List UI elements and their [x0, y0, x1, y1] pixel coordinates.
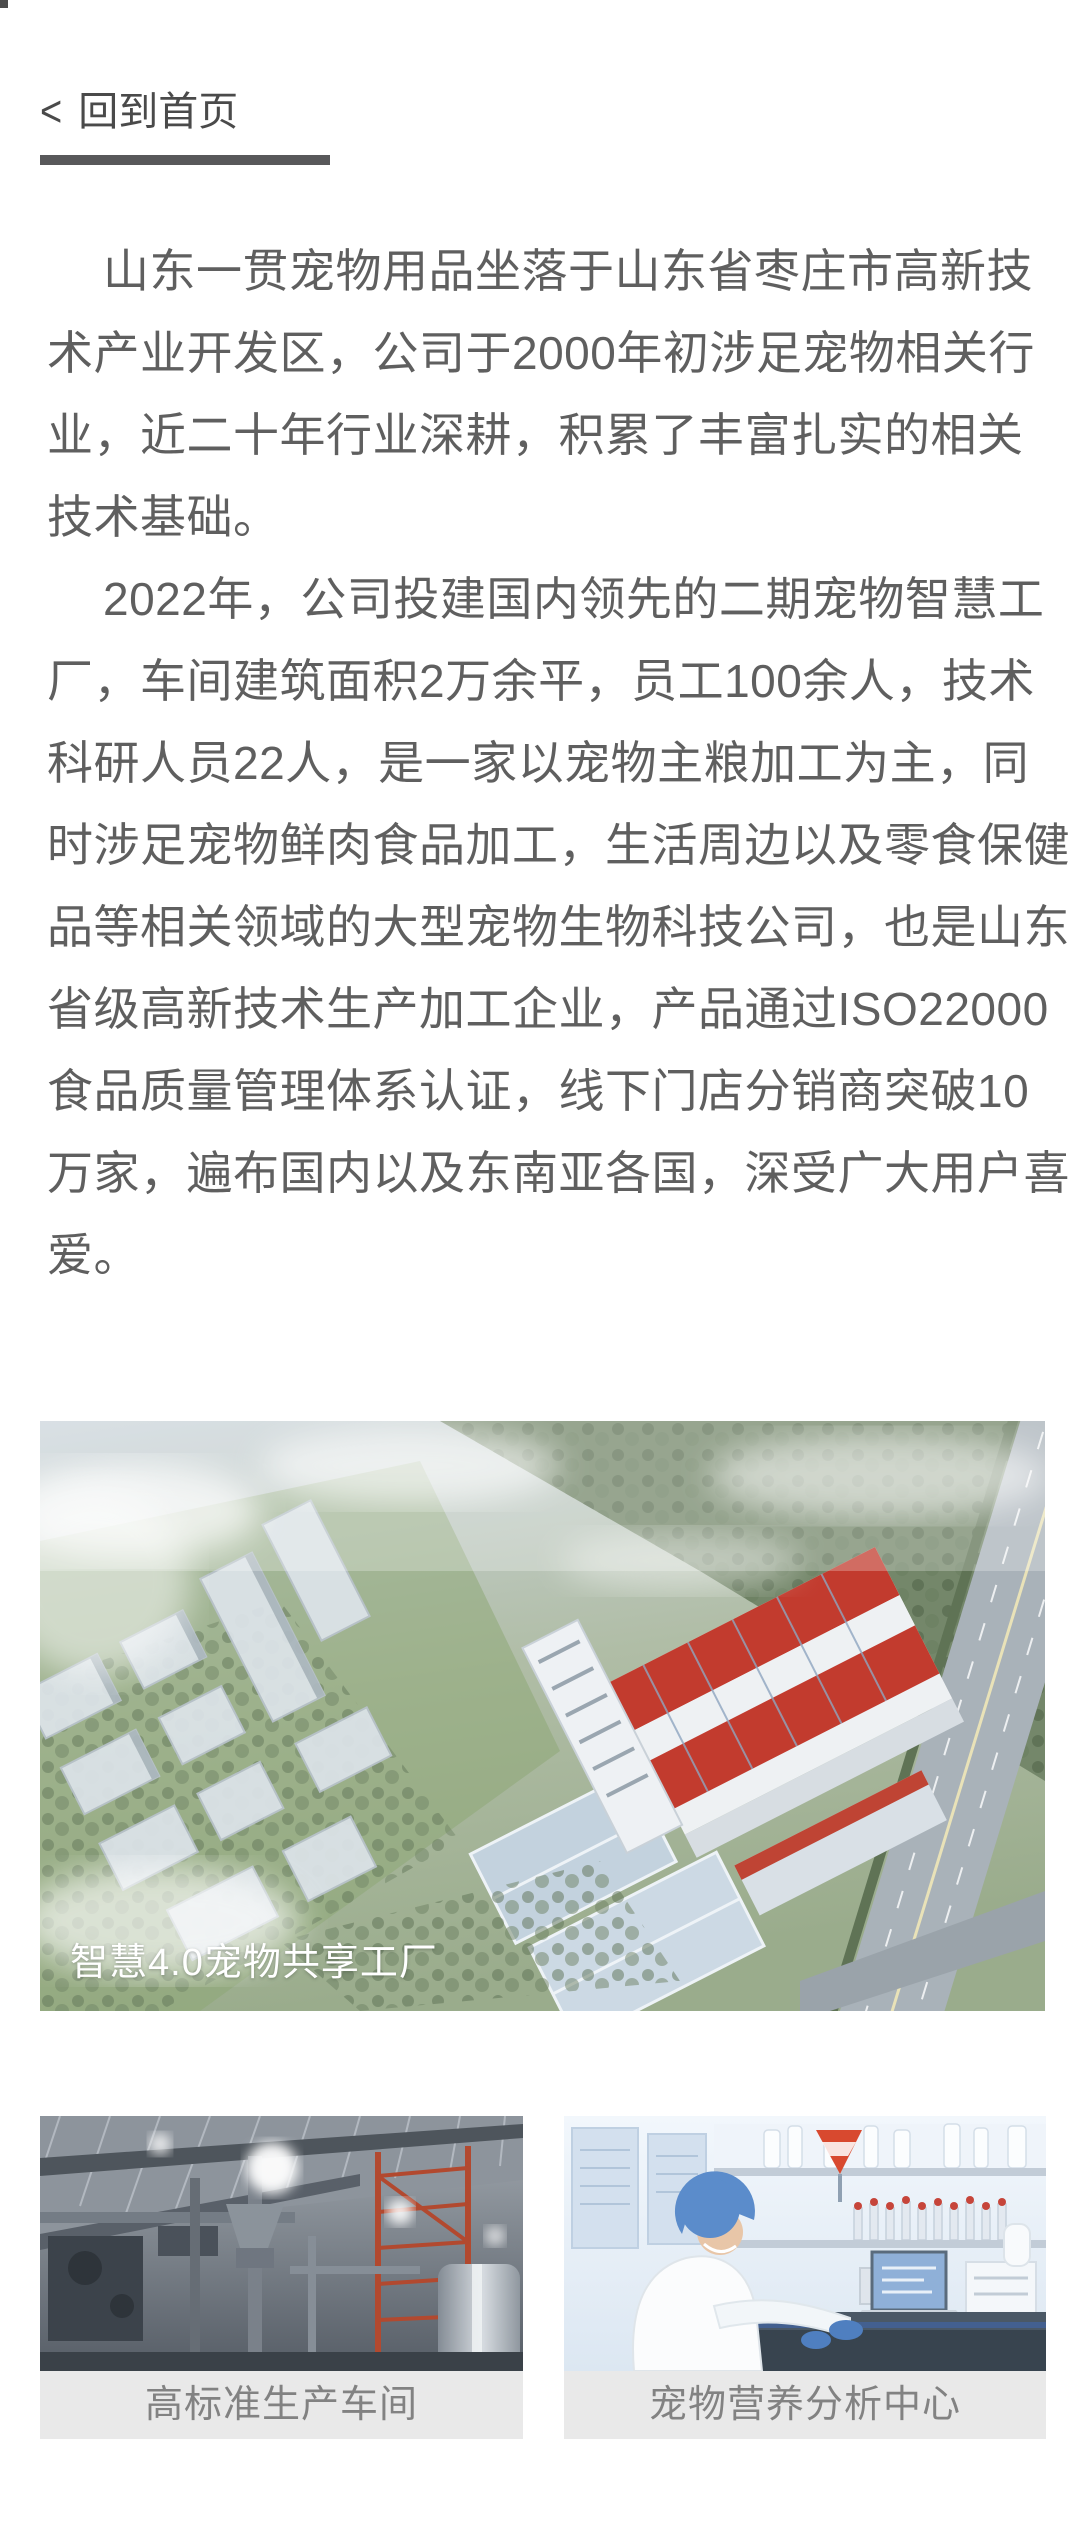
lab-figure: 宠物营养分析中心 — [564, 2116, 1046, 2439]
paragraph-line: 厂，车间建筑面积2万余平，员工100余人，技术 — [47, 640, 1040, 722]
main-photo-caption: 智慧4.0宠物共享工厂 — [70, 1941, 438, 1985]
back-to-home-link[interactable]: < 回到首页 — [40, 88, 238, 136]
lab-photo — [564, 2116, 1046, 2371]
lab-illustration — [564, 2116, 1046, 2371]
paragraph-line: 科研人员22人，是一家以宠物主粮加工为主，同 — [47, 722, 1040, 804]
workshop-illustration — [40, 2116, 523, 2371]
workshop-figure: 高标准生产车间 — [40, 2116, 523, 2439]
factory-aerial-photo: 智慧4.0宠物共享工厂 — [40, 1421, 1045, 2011]
paragraph-line: 术产业开发区，公司于2000年初涉足宠物相关行 — [47, 312, 1040, 394]
paragraph-line: 时涉足宠物鲜肉食品加工，生活周边以及零食保健 — [47, 804, 1040, 886]
paragraph-line: 品等相关领域的大型宠物生物科技公司，也是山东 — [47, 886, 1040, 968]
paragraph-line: 业，近二十年行业深耕，积累了丰富扎实的相关 — [47, 394, 1040, 476]
lab-caption: 宠物营养分析中心 — [564, 2371, 1046, 2439]
title-underline-bar — [40, 155, 330, 165]
paragraph-line: 食品质量管理体系认证，线下门店分销商突破10 — [47, 1050, 1040, 1132]
paragraph-line: 技术基础。 — [47, 476, 1040, 558]
paragraph-line: 山东一贯宠物用品坐落于山东省枣庄市高新技 — [47, 230, 1040, 312]
company-intro-article: 山东一贯宠物用品坐落于山东省枣庄市高新技 术产业开发区，公司于2000年初涉足宠… — [47, 230, 1040, 1296]
paragraph-line: 2022年，公司投建国内领先的二期宠物智慧工 — [47, 558, 1040, 640]
page: < 回到首页 山东一贯宠物用品坐落于山东省枣庄市高新技 术产业开发区，公司于20… — [0, 0, 1080, 2542]
chevron-left-icon: < — [40, 84, 62, 139]
paragraph-line: 爱。 — [47, 1214, 1040, 1296]
workshop-caption: 高标准生产车间 — [40, 2371, 523, 2439]
paragraph-line: 万家，遍布国内以及东南亚各国，深受广大用户喜 — [47, 1132, 1040, 1214]
factory-aerial-illustration — [40, 1421, 1045, 2011]
workshop-photo — [40, 2116, 523, 2371]
back-to-home-label: 回到首页 — [78, 88, 238, 136]
corner-artifact — [0, 0, 8, 8]
paragraph-line: 省级高新技术生产加工企业，产品通过ISO22000 — [47, 968, 1040, 1050]
